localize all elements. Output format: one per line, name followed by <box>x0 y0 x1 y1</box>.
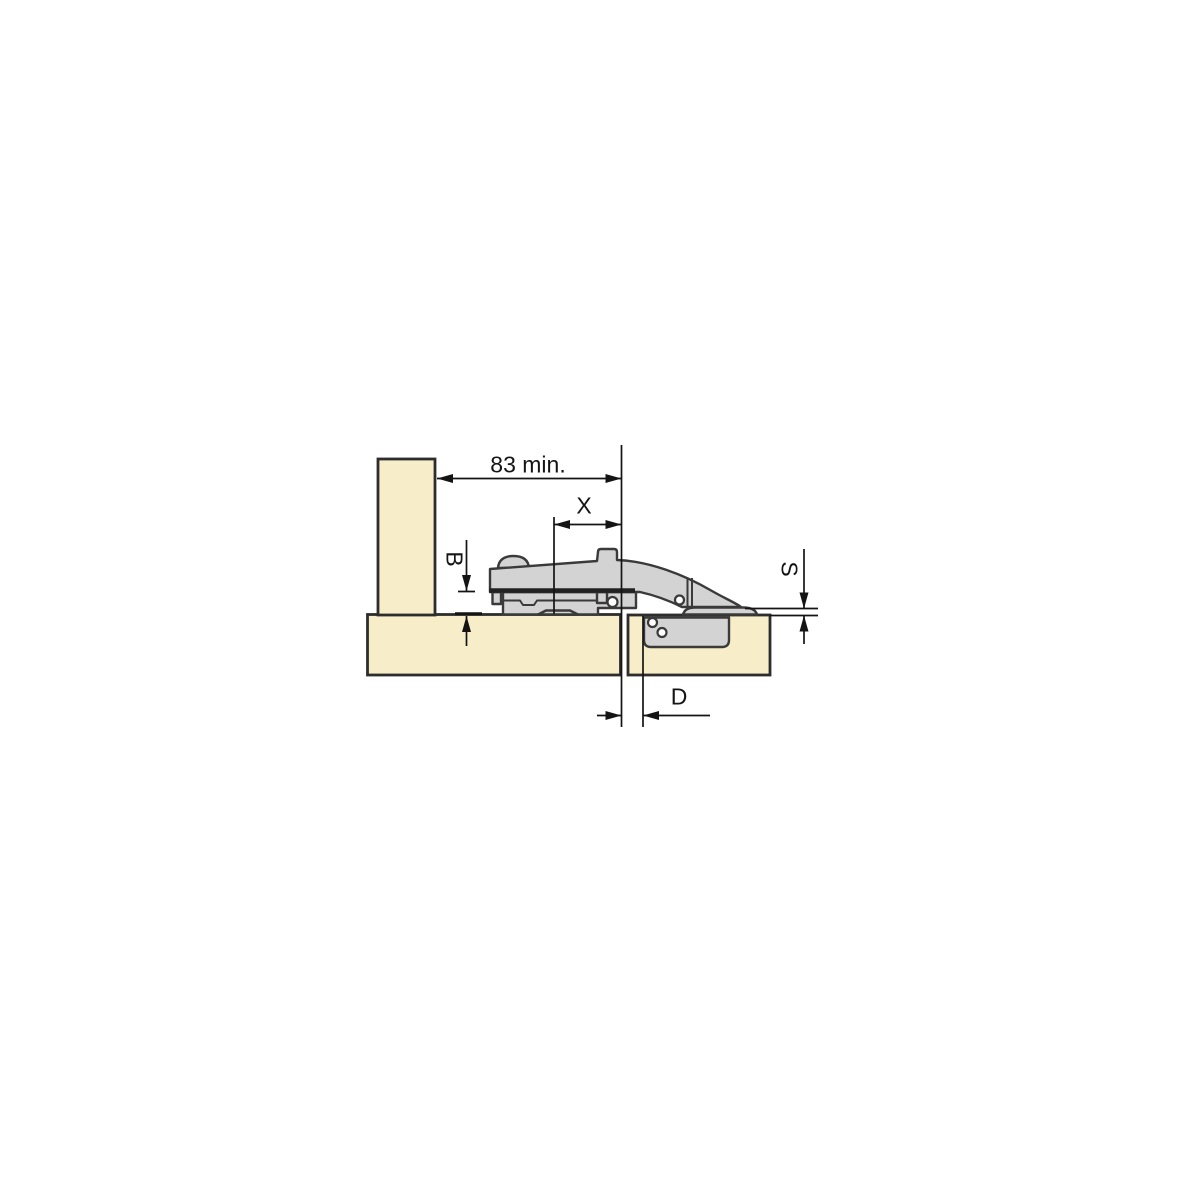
cabinet-bottom-panel <box>368 615 621 676</box>
dim-d-label: D <box>671 686 688 709</box>
screw-hole <box>648 618 657 627</box>
base-plate-left-tab <box>493 592 502 604</box>
screw-hole <box>658 628 667 637</box>
arm-screw-hole <box>675 596 684 605</box>
dim-s-label: S <box>778 561 801 576</box>
hinge-pivot <box>608 597 618 607</box>
dim-83min-label: 83 min. <box>490 454 565 477</box>
dim-b-label: B <box>443 551 466 566</box>
base-plate-bump <box>538 611 578 615</box>
dim-x-label: X <box>576 495 591 518</box>
cabinet-side-panel <box>378 459 435 615</box>
hinge-pivot-block <box>597 592 607 603</box>
diagram-drawing <box>0 0 1181 1181</box>
hinge-installation-diagram: 83 min. X B S D <box>0 0 1181 1181</box>
